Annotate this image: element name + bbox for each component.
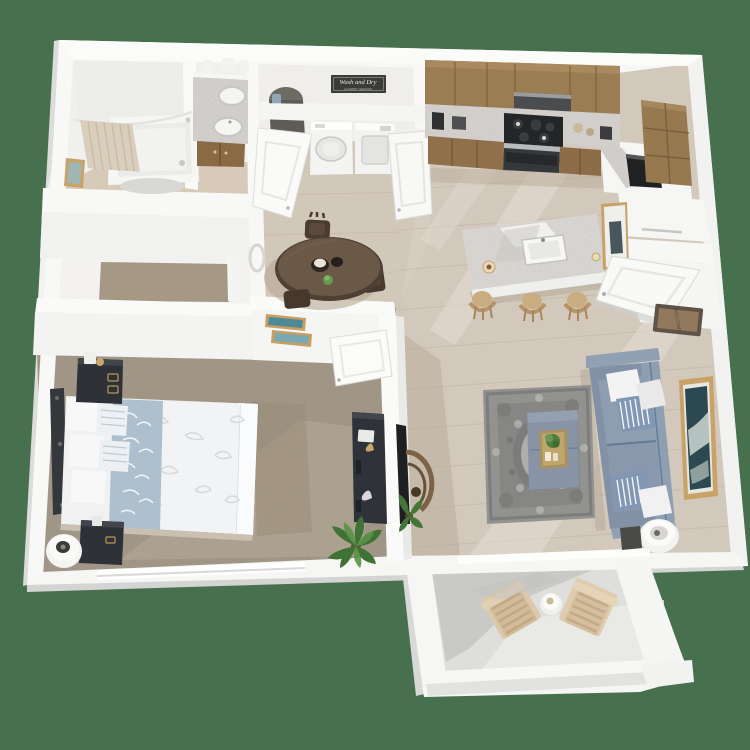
svg-text:LAUNDRY SERVICE: LAUNDRY SERVICE [344, 87, 372, 91]
svg-text:Wash and Dry: Wash and Dry [340, 79, 377, 86]
